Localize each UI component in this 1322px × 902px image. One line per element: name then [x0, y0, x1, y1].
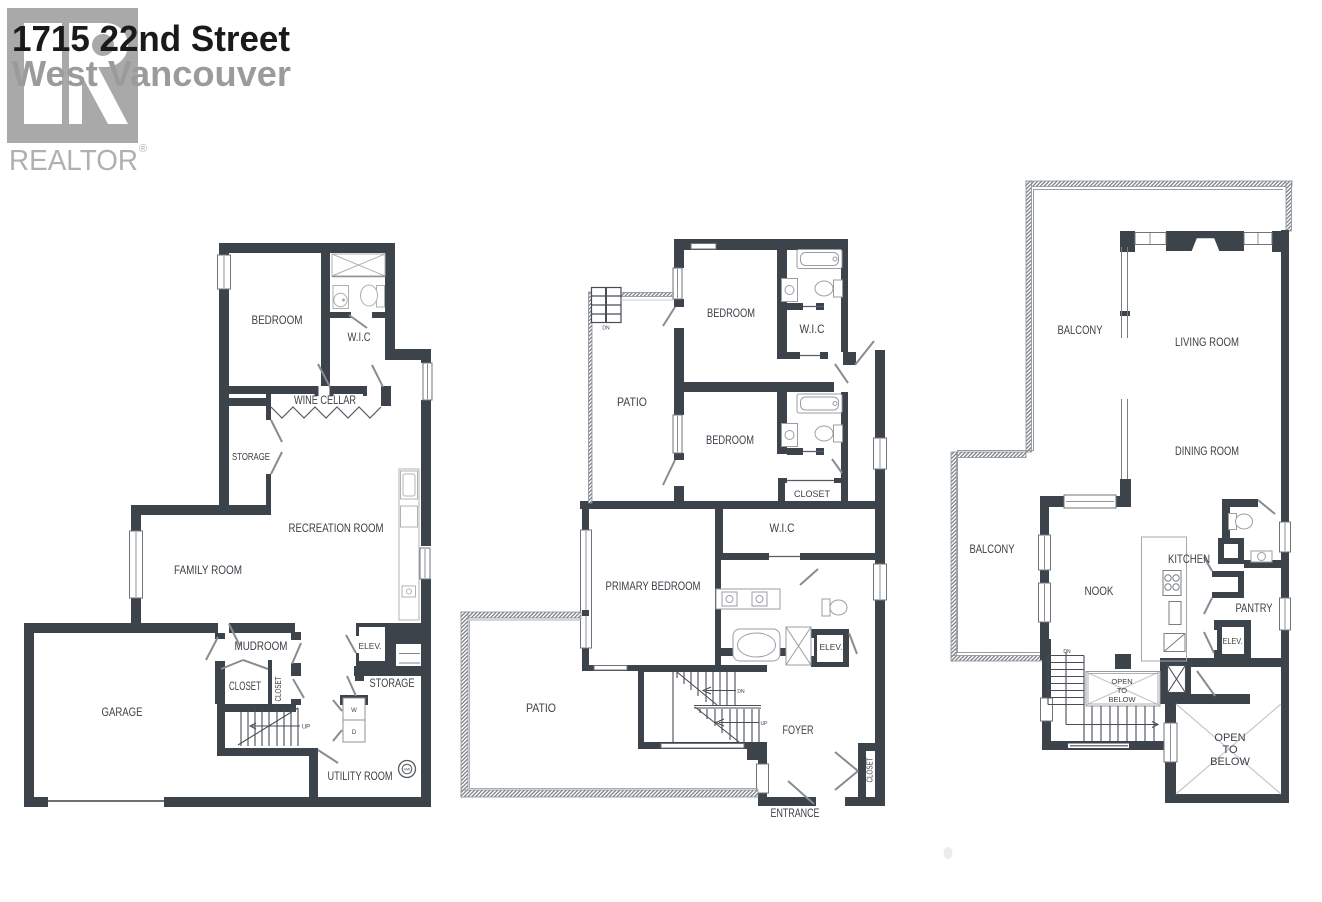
svg-text:BEDROOM: BEDROOM	[707, 306, 755, 320]
svg-text:ELEV.: ELEV.	[1223, 636, 1243, 646]
svg-text:OPEN: OPEN	[1214, 732, 1245, 744]
svg-text:DN: DN	[602, 326, 610, 332]
svg-text:LIVING ROOM: LIVING ROOM	[1175, 335, 1239, 349]
svg-text:W.I.C: W.I.C	[770, 521, 795, 535]
svg-text:FOYER: FOYER	[783, 723, 814, 737]
svg-text:W.I.C: W.I.C	[800, 322, 825, 336]
svg-text:BELOW: BELOW	[1210, 756, 1250, 768]
svg-text:PRIMARY BEDROOM: PRIMARY BEDROOM	[606, 579, 701, 593]
svg-text:MUDROOM: MUDROOM	[235, 639, 288, 653]
svg-text:RECREATION ROOM: RECREATION ROOM	[289, 521, 384, 535]
svg-text:KITCHEN: KITCHEN	[1168, 552, 1210, 566]
svg-text:BELOW: BELOW	[1108, 695, 1136, 704]
svg-text:West Vancouver: West Vancouver	[12, 53, 291, 94]
svg-text:PANTRY: PANTRY	[1236, 601, 1273, 615]
svg-text:ELEV.: ELEV.	[820, 642, 843, 652]
svg-text:BEDROOM: BEDROOM	[252, 313, 303, 327]
svg-text:CLOSET: CLOSET	[229, 679, 261, 693]
svg-text:W: W	[351, 708, 357, 714]
svg-text:UP: UP	[302, 725, 310, 731]
svg-text:OPEN: OPEN	[1111, 677, 1132, 686]
svg-text:DN: DN	[1063, 649, 1071, 655]
svg-text:WINE CELLAR: WINE CELLAR	[294, 393, 356, 407]
svg-text:CLOSET: CLOSET	[794, 489, 830, 500]
svg-text:DN: DN	[737, 689, 745, 695]
svg-text:GARAGE: GARAGE	[102, 705, 143, 719]
svg-text:CLOSET: CLOSET	[866, 757, 875, 782]
svg-text:ENTRANCE: ENTRANCE	[771, 806, 820, 820]
svg-text:STORAGE: STORAGE	[370, 676, 415, 690]
svg-text:®: ®	[139, 143, 147, 155]
svg-text:BALCONY: BALCONY	[970, 542, 1015, 556]
svg-text:FAMILY ROOM: FAMILY ROOM	[174, 563, 242, 577]
svg-text:TO: TO	[1222, 744, 1238, 756]
svg-text:CLOSET: CLOSET	[274, 676, 283, 701]
svg-text:BALCONY: BALCONY	[1058, 323, 1103, 337]
svg-text:PATIO: PATIO	[617, 395, 647, 409]
svg-text:DINING ROOM: DINING ROOM	[1175, 444, 1239, 458]
svg-text:NOOK: NOOK	[1085, 584, 1114, 598]
svg-text:REALTOR: REALTOR	[9, 145, 138, 177]
svg-text:ELEV.: ELEV.	[359, 641, 382, 651]
svg-text:D: D	[352, 730, 357, 736]
svg-text:UTILITY ROOM: UTILITY ROOM	[328, 769, 393, 783]
svg-text:TO: TO	[1117, 686, 1127, 695]
svg-text:PATIO: PATIO	[526, 701, 556, 715]
svg-text:UP: UP	[761, 721, 769, 727]
svg-text:STORAGE: STORAGE	[232, 452, 270, 463]
svg-text:BEDROOM: BEDROOM	[706, 433, 754, 447]
svg-text:W.I.C: W.I.C	[348, 330, 371, 344]
svg-text:HW: HW	[404, 767, 411, 772]
